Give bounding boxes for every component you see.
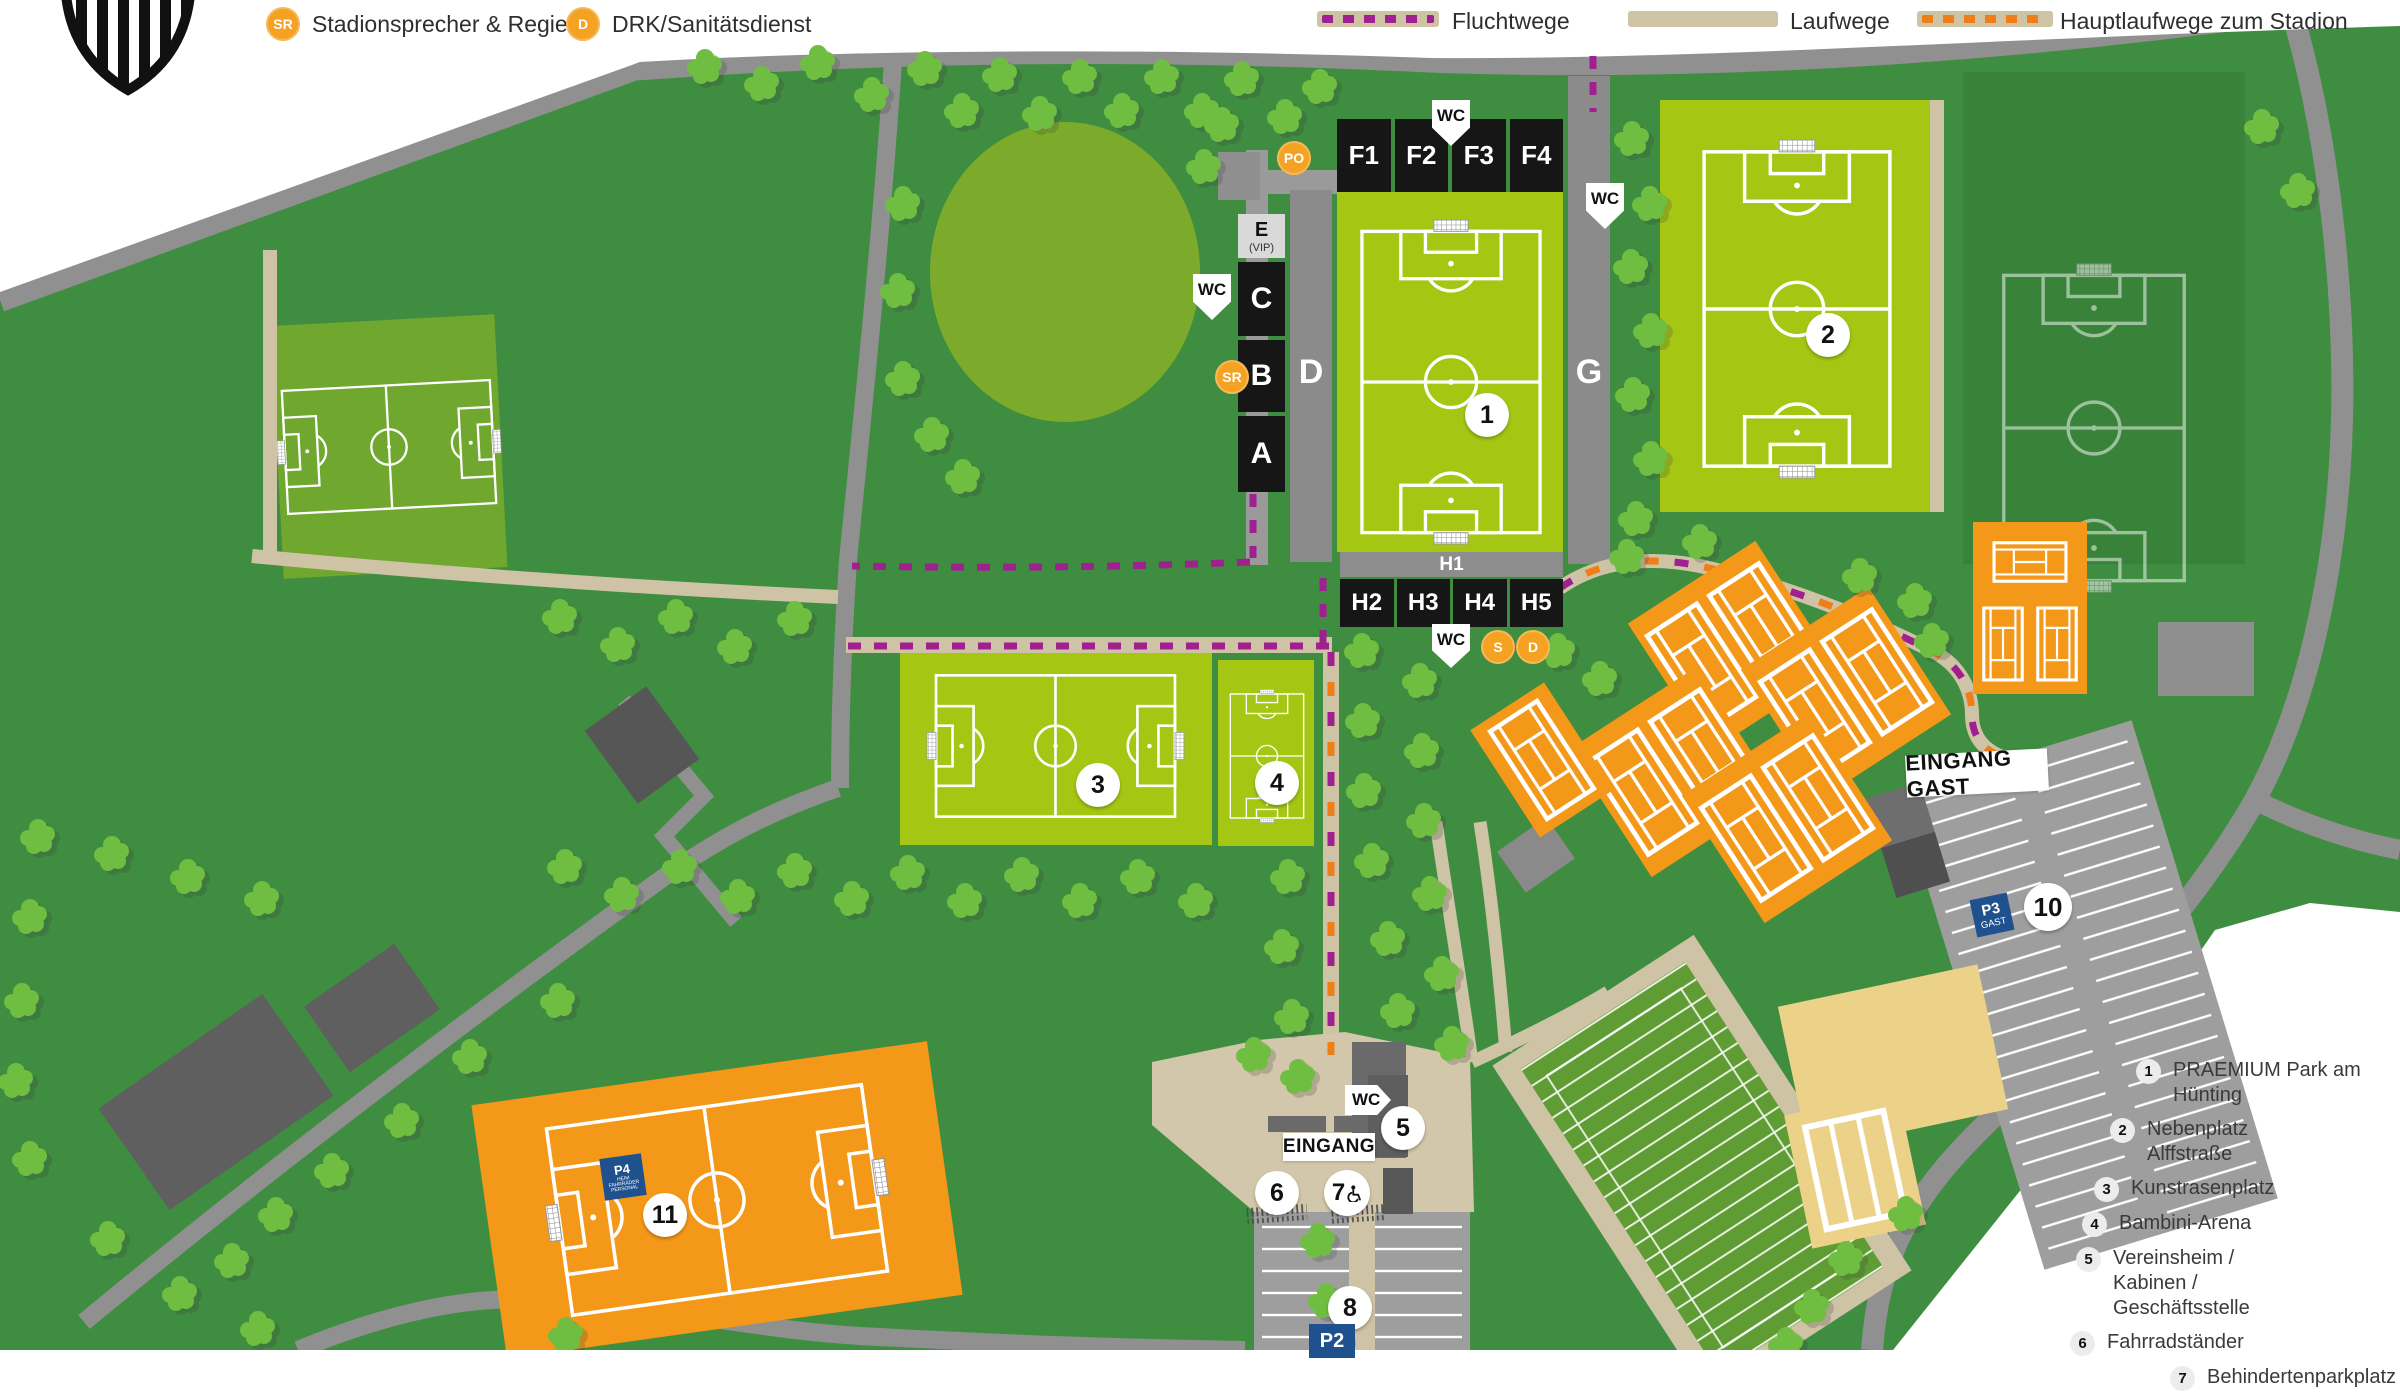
- marker-7-number: 7: [1332, 1179, 1345, 1207]
- stand-block: H5: [1510, 579, 1564, 627]
- list-item: 5 Vereinsheim / Kabinen / Geschäftsstell…: [2076, 1246, 2397, 1321]
- marker-4: 4: [1255, 761, 1299, 805]
- marker-7: 7: [1324, 1170, 1370, 1216]
- parking-p3-badge: P3 GAST: [1969, 892, 2014, 937]
- list-item: 7 Behindertenparkplatz: [2170, 1365, 2397, 1391]
- vip-label: E: [1255, 219, 1268, 242]
- list-item-number: 4: [2082, 1212, 2107, 1237]
- po-point: PO: [1277, 141, 1311, 175]
- vip-sub-label: (VIP): [1249, 242, 1274, 254]
- legend-sr-label: Stadionsprecher & Regie: [312, 11, 568, 38]
- legend-hauptlaufwege-label: Hauptlaufwege zum Stadion: [2060, 8, 2348, 35]
- legend-hauptlaufwege-swatch: [1917, 11, 2053, 27]
- stand-block: H3: [1397, 579, 1451, 627]
- list-item-label: Kunstrasenplatz: [2131, 1176, 2321, 1202]
- stand-south-blocks: H2H3H4H5: [1340, 579, 1563, 627]
- stand-h1-bar: H1: [1340, 552, 1563, 577]
- list-item-label: PRAEMIUM Park am Hünting: [2173, 1058, 2363, 1108]
- northwest-pitch: [271, 314, 508, 578]
- list-item-number: 2: [2110, 1118, 2135, 1143]
- stadium-site-map-page: { "legend": { "sr": {"symbol": "SR", "la…: [0, 0, 2400, 1350]
- marker-3: 3: [1076, 763, 1120, 807]
- list-item-number: 5: [2076, 1247, 2101, 1272]
- parking-p2-badge: P2: [1309, 1324, 1355, 1358]
- marker-5: 5: [1381, 1106, 1425, 1150]
- site-map: [0, 0, 2400, 1350]
- legend-drk-label: DRK/Sanitätsdienst: [612, 11, 811, 38]
- list-item-label: Nebenplatz Alffstraße: [2147, 1117, 2337, 1167]
- locations-list: 1 PRAEMIUM Park am Hünting 2 Nebenplatz …: [2170, 1058, 2397, 1400]
- pitch-4-bambini: [1218, 660, 1314, 846]
- list-item: 3 Kunstrasenplatz: [2094, 1176, 2397, 1202]
- list-item-label: Fahrradständer: [2107, 1330, 2297, 1356]
- stand-block-c: C: [1238, 262, 1285, 336]
- marker-11: 11: [643, 1193, 687, 1237]
- east-grass-pitch: [1963, 72, 2245, 592]
- list-item-label: Behindertenparkplatz: [2207, 1365, 2397, 1391]
- stand-block-e-vip: E (VIP): [1238, 214, 1285, 258]
- parking-p2: [1254, 1212, 1470, 1350]
- s-point: S: [1481, 630, 1515, 664]
- marker-10: 10: [2024, 883, 2072, 931]
- sr-point: SR: [1215, 360, 1249, 394]
- legend-fluchtwege-swatch: [1317, 11, 1439, 27]
- walkway-d-label: D: [1290, 352, 1332, 392]
- legend-drk-icon: D: [566, 7, 600, 41]
- legend-laufwege-swatch: [1628, 11, 1778, 27]
- list-item-number: 1: [2136, 1059, 2161, 1084]
- pitch-3-kunstrasen: [900, 645, 1212, 845]
- list-item-label: Vereinsheim / Kabinen / Geschäftsstelle: [2113, 1246, 2303, 1321]
- list-item: 2 Nebenplatz Alffstraße: [2110, 1117, 2397, 1167]
- list-item-number: 3: [2094, 1177, 2119, 1202]
- list-item-number: 7: [2170, 1366, 2195, 1391]
- list-item: 6 Fahrradständer: [2070, 1330, 2397, 1356]
- legend-laufwege-label: Laufwege: [1790, 8, 1890, 35]
- stand-block: H2: [1340, 579, 1394, 627]
- list-item: 1 PRAEMIUM Park am Hünting: [2136, 1058, 2397, 1108]
- marker-1: 1: [1465, 393, 1509, 437]
- training-oval: [930, 122, 1200, 422]
- stand-block: F4: [1510, 119, 1564, 192]
- legend-sr-icon: SR: [266, 7, 300, 41]
- list-item-number: 6: [2070, 1331, 2095, 1356]
- pitch-2-nebenplatz: [1660, 100, 1944, 512]
- list-item-label: Bambini-Arena: [2119, 1211, 2309, 1237]
- parking-p4-badge: P4 HEIM FAHRRÄDER PERSONAL: [599, 1153, 646, 1200]
- marker-6: 6: [1255, 1171, 1299, 1215]
- entrance-guest-label: EINGANG GAST: [1905, 748, 2049, 797]
- d-point: D: [1516, 630, 1550, 664]
- stand-block: F1: [1337, 119, 1391, 192]
- wheelchair-icon: [1347, 1185, 1362, 1202]
- marker-2: 2: [1806, 313, 1850, 357]
- stand-block: H4: [1453, 579, 1507, 627]
- stand-block-a: A: [1238, 416, 1285, 492]
- entrance-main-label: EINGANG: [1283, 1133, 1375, 1161]
- walkway-g-label: G: [1568, 352, 1610, 392]
- list-item: 4 Bambini-Arena: [2082, 1211, 2397, 1237]
- legend-fluchtwege-label: Fluchtwege: [1452, 8, 1570, 35]
